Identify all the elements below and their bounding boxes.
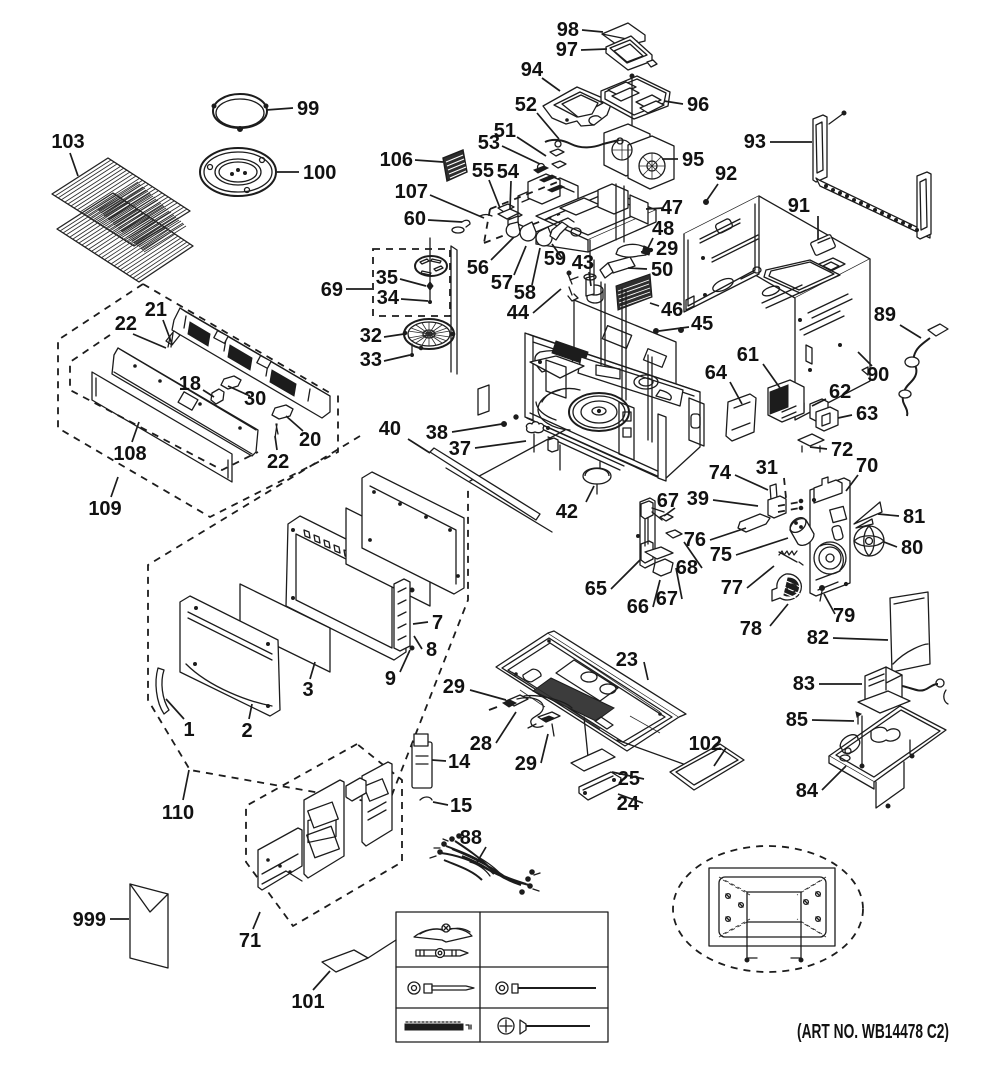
svg-text:82: 82 — [807, 627, 829, 649]
svg-text:46: 46 — [661, 299, 683, 321]
svg-text:39: 39 — [687, 488, 709, 510]
svg-text:83: 83 — [793, 673, 815, 695]
svg-text:90: 90 — [867, 364, 889, 386]
svg-text:52: 52 — [515, 94, 537, 116]
svg-text:29: 29 — [515, 753, 537, 775]
svg-text:53: 53 — [478, 132, 500, 154]
svg-text:88: 88 — [460, 827, 482, 849]
svg-text:23: 23 — [616, 649, 638, 671]
svg-text:25: 25 — [618, 768, 640, 790]
svg-text:84: 84 — [796, 780, 819, 802]
svg-text:106: 106 — [380, 149, 413, 171]
svg-text:9: 9 — [385, 668, 396, 690]
svg-text:107: 107 — [395, 181, 428, 203]
svg-text:28: 28 — [470, 733, 492, 755]
svg-text:45: 45 — [691, 313, 713, 335]
svg-text:64: 64 — [705, 362, 728, 384]
svg-text:38: 38 — [426, 422, 448, 444]
svg-text:57: 57 — [491, 272, 513, 294]
svg-text:66: 66 — [627, 596, 649, 618]
svg-text:101: 101 — [291, 991, 324, 1013]
svg-text:67: 67 — [656, 588, 678, 610]
svg-text:99: 99 — [297, 98, 319, 120]
svg-text:37: 37 — [449, 438, 471, 460]
svg-text:96: 96 — [687, 94, 709, 116]
svg-text:75: 75 — [710, 544, 732, 566]
svg-text:34: 34 — [377, 287, 400, 309]
svg-text:100: 100 — [303, 162, 336, 184]
svg-text:50: 50 — [651, 259, 673, 281]
svg-text:70: 70 — [856, 455, 878, 477]
svg-text:95: 95 — [682, 149, 704, 171]
svg-text:97: 97 — [556, 39, 578, 61]
svg-text:58: 58 — [514, 282, 536, 304]
svg-text:8: 8 — [426, 639, 437, 661]
svg-text:56: 56 — [467, 257, 489, 279]
svg-text:60: 60 — [404, 208, 426, 230]
svg-text:43: 43 — [572, 252, 594, 274]
svg-text:74: 74 — [709, 462, 732, 484]
svg-text:3: 3 — [302, 679, 313, 701]
svg-text:22: 22 — [115, 313, 137, 335]
svg-text:14: 14 — [448, 751, 471, 773]
svg-text:59: 59 — [544, 248, 566, 270]
svg-text:40: 40 — [379, 418, 401, 440]
svg-text:31: 31 — [756, 457, 778, 479]
svg-text:68: 68 — [676, 557, 698, 579]
svg-text:30: 30 — [244, 388, 266, 410]
svg-text:79: 79 — [833, 605, 855, 627]
svg-text:7: 7 — [432, 612, 443, 634]
svg-text:85: 85 — [786, 709, 808, 731]
svg-text:69: 69 — [321, 279, 343, 301]
svg-text:32: 32 — [360, 325, 382, 347]
svg-text:29: 29 — [656, 238, 678, 260]
svg-text:93: 93 — [744, 131, 766, 153]
svg-text:21: 21 — [145, 299, 167, 321]
svg-text:(ART NO. WB14478 C2): (ART NO. WB14478 C2) — [797, 1021, 949, 1043]
svg-text:35: 35 — [376, 267, 398, 289]
svg-text:110: 110 — [162, 802, 194, 824]
svg-text:29: 29 — [443, 676, 465, 698]
svg-text:22: 22 — [267, 451, 289, 473]
svg-text:44: 44 — [507, 302, 530, 324]
svg-text:15: 15 — [450, 795, 472, 817]
svg-text:62: 62 — [829, 381, 851, 403]
svg-text:94: 94 — [521, 59, 544, 81]
svg-text:48: 48 — [652, 218, 674, 240]
svg-text:42: 42 — [556, 501, 578, 523]
svg-text:47: 47 — [661, 197, 683, 219]
svg-text:89: 89 — [874, 304, 896, 326]
svg-text:71: 71 — [239, 930, 261, 952]
svg-text:65: 65 — [585, 578, 607, 600]
svg-text:1: 1 — [183, 719, 194, 741]
svg-text:54: 54 — [497, 161, 520, 183]
svg-text:81: 81 — [903, 506, 925, 528]
svg-text:78: 78 — [740, 618, 762, 640]
svg-text:33: 33 — [360, 349, 382, 371]
svg-text:77: 77 — [721, 577, 743, 599]
svg-text:18: 18 — [179, 373, 201, 395]
svg-text:2: 2 — [241, 720, 252, 742]
svg-text:102: 102 — [689, 733, 722, 755]
svg-text:61: 61 — [737, 344, 759, 366]
svg-text:91: 91 — [788, 195, 810, 217]
svg-text:108: 108 — [113, 443, 146, 465]
svg-text:80: 80 — [901, 537, 923, 559]
svg-text:55: 55 — [472, 160, 494, 182]
svg-text:63: 63 — [856, 403, 878, 425]
svg-text:67: 67 — [657, 490, 679, 512]
svg-text:20: 20 — [299, 429, 321, 451]
svg-text:92: 92 — [715, 163, 737, 185]
svg-text:103: 103 — [51, 131, 84, 153]
svg-text:109: 109 — [88, 498, 121, 520]
svg-text:24: 24 — [617, 793, 640, 815]
svg-text:999: 999 — [73, 909, 106, 931]
svg-text:98: 98 — [557, 19, 579, 41]
svg-text:72: 72 — [831, 439, 853, 461]
